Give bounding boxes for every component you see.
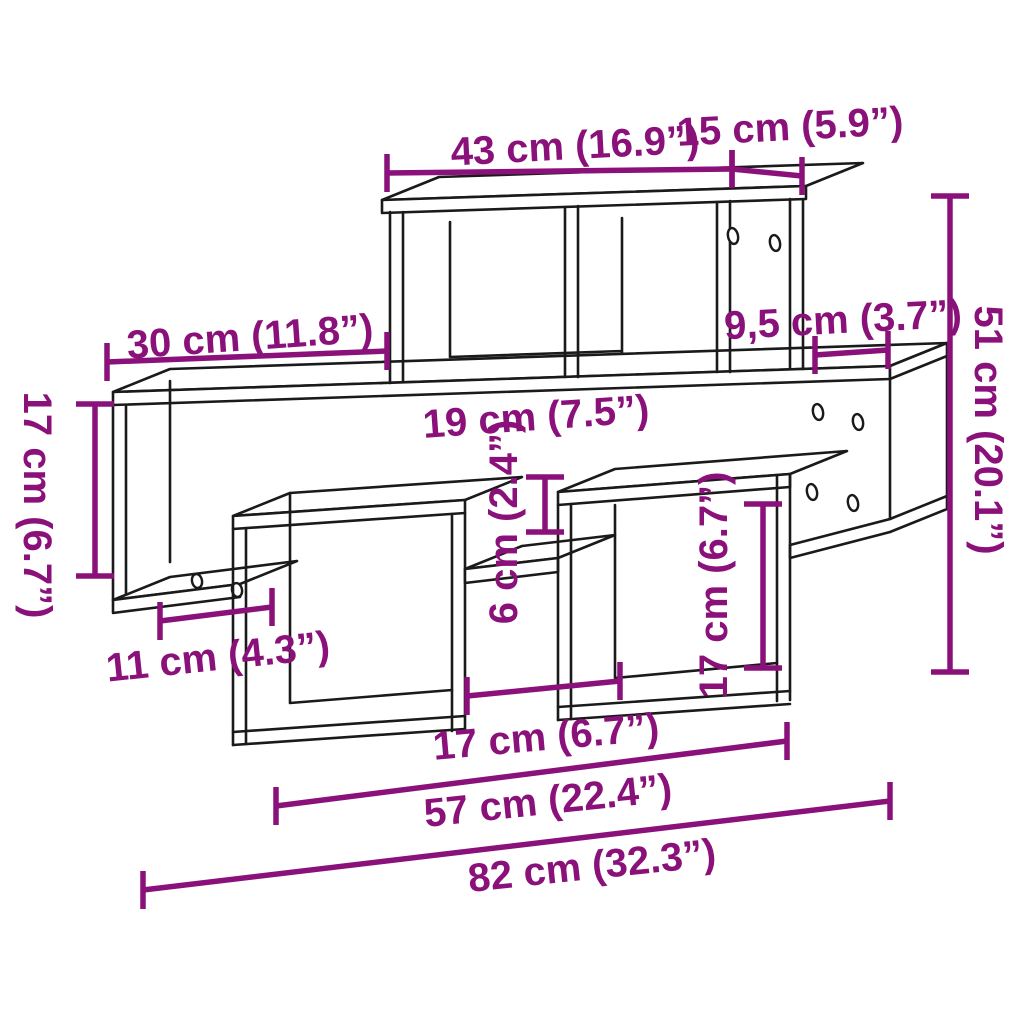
diagram-svg: 43 cm (16.9”)15 cm (5.9”)30 cm (11.8”)9,… xyxy=(0,0,1024,1024)
screw-hole xyxy=(726,227,739,245)
top-shelf-box xyxy=(382,163,863,383)
left-side-panel xyxy=(113,381,170,600)
dim-51cm-label: 51 cm (20.1”) xyxy=(966,305,1010,554)
screw-hole xyxy=(811,403,824,421)
dim-43cm-label: 43 cm (16.9”) xyxy=(450,118,701,175)
dim-9-5cm-label: 9,5 cm (3.7”) xyxy=(723,292,963,348)
screw-hole xyxy=(851,413,864,431)
dimension-diagram: 43 cm (16.9”)15 cm (5.9”)30 cm (11.8”)9,… xyxy=(0,0,1024,1024)
dim-17cm-left-label: 17 cm (6.7”) xyxy=(15,392,59,619)
dim-11cm-label: 11 cm (4.3”) xyxy=(104,623,332,690)
left-cube-box xyxy=(233,477,522,745)
label-19cm: 19 cm (7.5”) xyxy=(421,387,650,447)
dim-51cm: 51 cm (20.1”) xyxy=(931,196,1010,672)
dim-30cm-label: 30 cm (11.8”) xyxy=(125,306,374,367)
dimension-annotations: 43 cm (16.9”)15 cm (5.9”)30 cm (11.8”)9,… xyxy=(15,99,1010,909)
dim-6cm: 6 cm (2.4”) xyxy=(482,420,564,625)
dim-15cm-label: 15 cm (5.9”) xyxy=(676,99,905,155)
dim-17cm-left: 17 cm (6.7”) xyxy=(15,392,114,619)
dim-57cm-label: 57 cm (22.4”) xyxy=(422,766,674,836)
screw-hole xyxy=(846,494,859,512)
dim-6cm-label: 6 cm (2.4”) xyxy=(482,420,526,625)
dim-82cm-label: 82 cm (32.3”) xyxy=(466,831,718,901)
label-19cm-label: 19 cm (7.5”) xyxy=(421,387,650,447)
dim-17cm-box-label: 17 cm (6.7”) xyxy=(692,472,736,699)
screw-hole xyxy=(768,234,781,252)
screw-hole xyxy=(805,483,818,501)
